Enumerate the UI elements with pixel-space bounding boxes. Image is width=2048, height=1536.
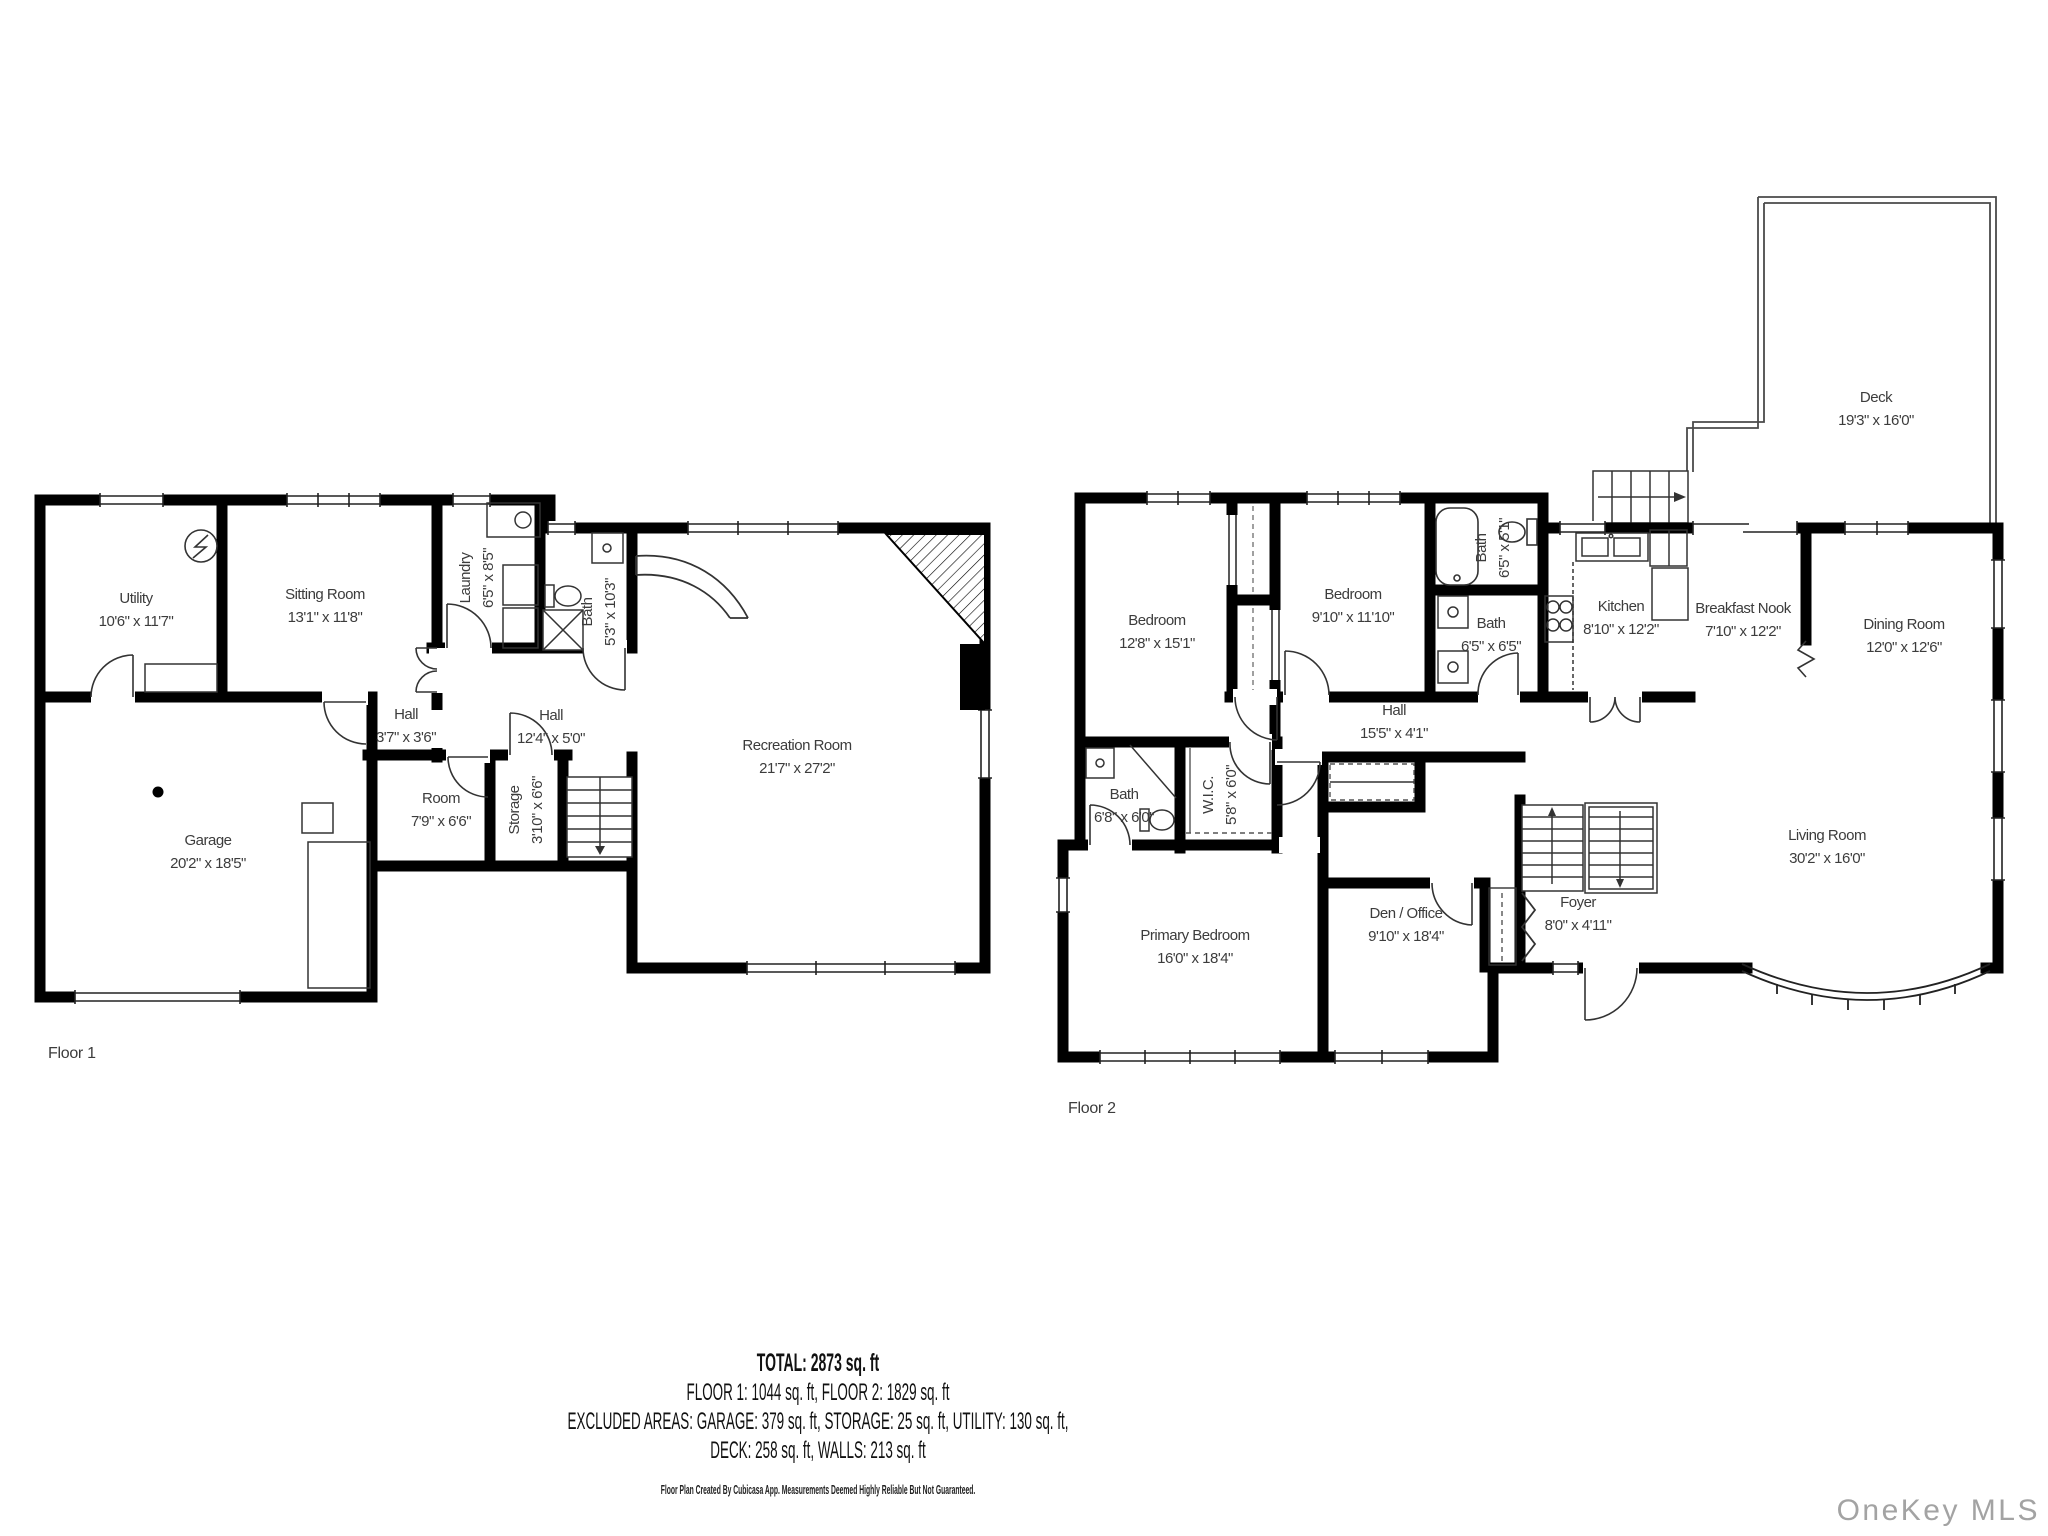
room-label-kitchen: Kitchen 8'10" x 12'2" xyxy=(1583,595,1659,641)
room-label-laundry: Laundry 6'5" x 8'5" xyxy=(454,548,500,608)
onekey-mls-watermark: OneKey MLS xyxy=(1837,1494,2040,1528)
excluded-areas-text-1: EXCLUDED AREAS: GARAGE: 379 sq. ft, STOR… xyxy=(360,1407,1276,1436)
room-label-bath-mid: Bath 6'5" x 6'5" xyxy=(1461,612,1521,658)
room-label-den-office: Den / Office 9'10" x 18'4" xyxy=(1368,902,1444,948)
deck-outline xyxy=(1687,197,1996,523)
utility-counter xyxy=(145,664,217,692)
room-label-bedroom1: Bedroom 12'8" x 15'1" xyxy=(1119,609,1195,655)
disclaimer-text: Floor Plan Created By Cubicasa App. Meas… xyxy=(393,1482,1244,1497)
room-label-bath-upper: Bath 6'5" x 5'1" xyxy=(1470,518,1516,578)
room-label-sitting-room: Sitting Room 13'1" x 11'8" xyxy=(285,583,365,629)
wall-break-symbol xyxy=(1798,641,1814,677)
floor2-title: Floor 2 xyxy=(1068,1100,1116,1118)
hall-closet xyxy=(1330,764,1414,800)
room-label-hall-f2: Hall 15'5" x 4'1" xyxy=(1360,699,1428,745)
room-label-storage: Storage 3'10" x 6'6" xyxy=(503,776,549,844)
bow-window xyxy=(1742,964,1990,1010)
foyer-closet xyxy=(1489,888,1535,965)
curved-wall xyxy=(636,556,748,618)
room-label-breakfast-nook: Breakfast Nook 7'10" x 12'2" xyxy=(1695,597,1791,643)
deck-stairs-icon xyxy=(1593,471,1688,523)
room-label-recreation-room: Recreation Room 21'7" x 27'2" xyxy=(742,734,851,780)
total-area-text: TOTAL: 2873 sq. ft xyxy=(360,1348,1276,1378)
fireplace-icon xyxy=(886,534,985,710)
room-label-foyer: Foyer 8'0" x 4'11" xyxy=(1545,891,1612,937)
room-label-garage: Garage 20'2" x 18'5" xyxy=(170,829,246,875)
floor-plan-drawing xyxy=(0,0,2048,1536)
electric-panel-icon xyxy=(185,530,217,562)
floor1-stairs-icon xyxy=(567,777,632,857)
room-label-bedroom2: Bedroom 9'10" x 11'10" xyxy=(1312,583,1395,629)
room-label-hall-f1: Hall 12'4" x 5'0" xyxy=(517,704,585,750)
floor-areas-text: FLOOR 1: 1044 sq. ft, FLOOR 2: 1829 sq. … xyxy=(360,1378,1276,1407)
room-label-room: Room 7'9" x 6'6" xyxy=(411,787,471,833)
excluded-areas-text-2: DECK: 258 sq. ft, WALLS: 213 sq. ft xyxy=(360,1436,1276,1465)
room-label-dining-room: Dining Room 12'0" x 12'6" xyxy=(1863,613,1944,659)
floor1-title: Floor 1 xyxy=(48,1045,96,1063)
room-label-deck: Deck 19'3" x 16'0" xyxy=(1838,386,1914,432)
floor-plan-page: Utility 10'6" x 11'7" Sitting Room 13'1"… xyxy=(0,0,2048,1536)
room-label-hall-small: Hall 3'7" x 3'6" xyxy=(376,703,436,749)
garage-items xyxy=(153,787,371,989)
area-summary: TOTAL: 2873 sq. ft FLOOR 1: 1044 sq. ft,… xyxy=(0,1348,1636,1497)
floor2-stairs-icon xyxy=(1522,803,1657,893)
room-label-bath-f1: Bath 5'3" x 10'3" xyxy=(576,578,622,646)
room-label-primary-bedroom: Primary Bedroom 16'0" x 18'4" xyxy=(1140,924,1249,970)
room-label-wic: W.I.C. 5'8" x 6'0" xyxy=(1197,765,1243,825)
room-label-bath-lower: Bath 6'8" x 6'0" xyxy=(1094,783,1154,829)
room-label-living-room: Living Room 30'2" x 16'0" xyxy=(1788,824,1866,870)
room-label-utility: Utility 10'6" x 11'7" xyxy=(99,587,174,633)
